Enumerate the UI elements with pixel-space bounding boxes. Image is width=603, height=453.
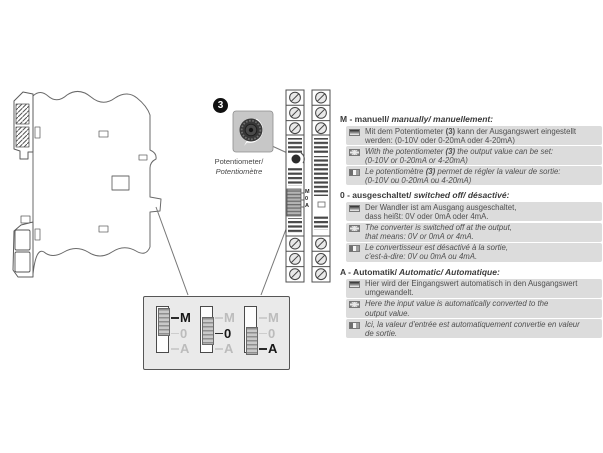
- dip-position-label: 0: [268, 327, 282, 341]
- instruction-line: Ici, la valeur d'entrée est automatiquem…: [365, 320, 602, 329]
- instruction-line: (0-10V or 0-20mA or 4-20mA): [365, 156, 602, 165]
- dip-position-label: A: [224, 342, 238, 356]
- instruction-text: Le convertisseur est désactivé à la sort…: [365, 243, 602, 262]
- instruction-line: Der Wandler ist am Ausgang ausgeschaltet…: [365, 203, 602, 212]
- instruction-text: Ici, la valeur d'entrée est automatiquem…: [365, 319, 602, 338]
- ventilation-slats: [288, 138, 328, 233]
- dip-dash: [259, 317, 267, 319]
- front-view-drawing: [286, 90, 330, 282]
- instruction-line: Le potentiomètre (3) permet de régler la…: [365, 167, 602, 176]
- gb-flag-icon: [349, 301, 360, 308]
- dip-position-label: A: [268, 342, 282, 356]
- section-heading-italic: manually/ manuellement:: [389, 114, 493, 124]
- potentiometer-label-line1: Potentiometer/: [196, 157, 282, 167]
- instruction-section: A - Automatik/ Automatic/ Automatique:Hi…: [340, 267, 602, 338]
- instruction-item: Mit dem Potentiometer (3) kann der Ausga…: [346, 126, 602, 145]
- fr-flag-icon: [349, 322, 360, 329]
- leader-line-left: [156, 207, 188, 295]
- screw-terminals-top: [290, 92, 327, 133]
- de-flag-icon: [349, 205, 360, 212]
- instruction-item: Hier wird der Eingangswert automatisch i…: [346, 279, 602, 298]
- dip-dash: [215, 317, 223, 319]
- potentiometer-label-line2: Potentiomètre: [196, 167, 282, 177]
- instruction-text: With the potentiometer (3) the output va…: [365, 146, 602, 165]
- potentiometer-icon: [233, 111, 273, 152]
- instruction-item: Here the input value is automatically co…: [346, 299, 602, 318]
- device-dip-labels: M 0 A: [305, 189, 310, 210]
- instruction-section: 0 - ausgeschaltet/ switched off/ désacti…: [340, 190, 602, 261]
- dip-dash: [259, 348, 267, 350]
- dip-dash: [259, 333, 267, 335]
- gb-flag-icon: [349, 225, 360, 232]
- instruction-line: c'est-à-dire: 0V ou 0mA ou 4mA.: [365, 252, 602, 261]
- de-flag-icon: [349, 281, 360, 288]
- section-heading-plain: 0 - ausgeschaltet/: [340, 190, 411, 200]
- section-heading-plain: A - Automatik/: [340, 267, 397, 277]
- de-flag-icon: [349, 129, 360, 136]
- dip-switch-knob: [158, 308, 170, 336]
- instruction-line: dass heißt: 0V oder 0mA oder 4mA.: [365, 212, 602, 221]
- instruction-item: Le potentiomètre (3) permet de régler la…: [346, 166, 602, 185]
- dip-position-label: M: [268, 311, 282, 325]
- device-dip-label-m: M: [305, 189, 310, 196]
- device-dip-label-a: A: [305, 203, 310, 210]
- instruction-text: The converter is switched off at the out…: [365, 223, 602, 242]
- dip-switch-track: [200, 306, 213, 353]
- device-dip-label-0: 0: [305, 196, 310, 203]
- instructions: M - manuell/ manually/ manuellement:Mit …: [340, 114, 602, 343]
- instruction-line: Here the input value is automatically co…: [365, 299, 602, 308]
- instruction-line: Hier wird der Eingangswert automatisch i…: [365, 279, 602, 288]
- section-heading: M - manuell/ manually/ manuellement:: [340, 114, 602, 124]
- instruction-line: The converter is switched off at the out…: [365, 223, 602, 232]
- dip-dash: [215, 333, 223, 335]
- instruction-text: Hier wird der Eingangswert automatisch i…: [365, 279, 602, 298]
- screw-terminals-bottom: [290, 238, 327, 279]
- dip-switch: M0A: [197, 306, 239, 362]
- dip-position-label: M: [224, 311, 238, 325]
- section-heading-italic: Automatic/ Automatique:: [397, 267, 500, 277]
- section-heading-plain: M - manuell/: [340, 114, 389, 124]
- section-heading-italic: switched off/ désactivé:: [411, 190, 509, 200]
- instruction-item: Ici, la valeur d'entrée est automatiquem…: [346, 319, 602, 338]
- dip-switch-track: [244, 306, 257, 353]
- dip-dash: [171, 348, 179, 350]
- potentiometer-label: Potentiometer/ Potentiomètre: [196, 157, 282, 176]
- instruction-text: Der Wandler ist am Ausgang ausgeschaltet…: [365, 202, 602, 221]
- instruction-text: Mit dem Potentiometer (3) kann der Ausga…: [365, 126, 602, 145]
- dip-dash: [215, 348, 223, 350]
- dip-switch-detail: M0AM0AM0A: [143, 296, 290, 370]
- instruction-item: With the potentiometer (3) the output va…: [346, 146, 602, 165]
- dip-dash: [171, 317, 179, 319]
- instruction-text: Le potentiomètre (3) permet de régler la…: [365, 166, 602, 185]
- instruction-item: The converter is switched off at the out…: [346, 223, 602, 242]
- dip-switch: M0A: [153, 306, 195, 362]
- instruction-section: M - manuell/ manually/ manuellement:Mit …: [340, 114, 602, 185]
- instruction-text: Here the input value is automatically co…: [365, 299, 602, 318]
- dip-position-label: 0: [180, 327, 194, 341]
- instruction-line: output value.: [365, 309, 602, 318]
- dip-position-label: 0: [224, 327, 238, 341]
- instruction-item: Le convertisseur est désactivé à la sort…: [346, 243, 602, 262]
- instruction-line: With the potentiometer (3) the output va…: [365, 147, 602, 156]
- section-heading: 0 - ausgeschaltet/ switched off/ désacti…: [340, 190, 602, 200]
- instruction-line: Mit dem Potentiometer (3) kann der Ausga…: [365, 127, 602, 136]
- gb-flag-icon: [349, 149, 360, 156]
- dip-switch: M0A: [241, 306, 283, 362]
- instruction-line: that means: 0V or 0mA or 4mA.: [365, 232, 602, 241]
- instruction-line: de sortie.: [365, 329, 602, 338]
- instruction-line: (0-10V ou 0-20mA ou 4-20mA): [365, 176, 602, 185]
- callout-badge-3: 3: [213, 98, 228, 113]
- dip-switch-track: [156, 306, 169, 353]
- instruction-line: umgewandelt.: [365, 288, 602, 297]
- instruction-line: Le convertisseur est désactivé à la sort…: [365, 243, 602, 252]
- dip-position-label: A: [180, 342, 194, 356]
- dip-switch-knob: [202, 317, 214, 345]
- fr-flag-icon: [349, 169, 360, 176]
- dip-switch-knob: [246, 327, 258, 355]
- dip-dash: [171, 333, 179, 335]
- instruction-line: werden: (0-10V oder 0-20mA oder 4-20mA): [365, 136, 602, 145]
- device-potentiometer-knob: [292, 155, 301, 164]
- device-dip-switch: [287, 189, 301, 216]
- section-heading: A - Automatik/ Automatic/ Automatique:: [340, 267, 602, 277]
- dip-position-label: M: [180, 311, 194, 325]
- manual-page: 3 Potentiometer/ Potentiomètre M 0 A M0A…: [0, 0, 603, 453]
- instruction-item: Der Wandler ist am Ausgang ausgeschaltet…: [346, 202, 602, 221]
- fr-flag-icon: [349, 245, 360, 252]
- side-view-drawing: [13, 91, 161, 277]
